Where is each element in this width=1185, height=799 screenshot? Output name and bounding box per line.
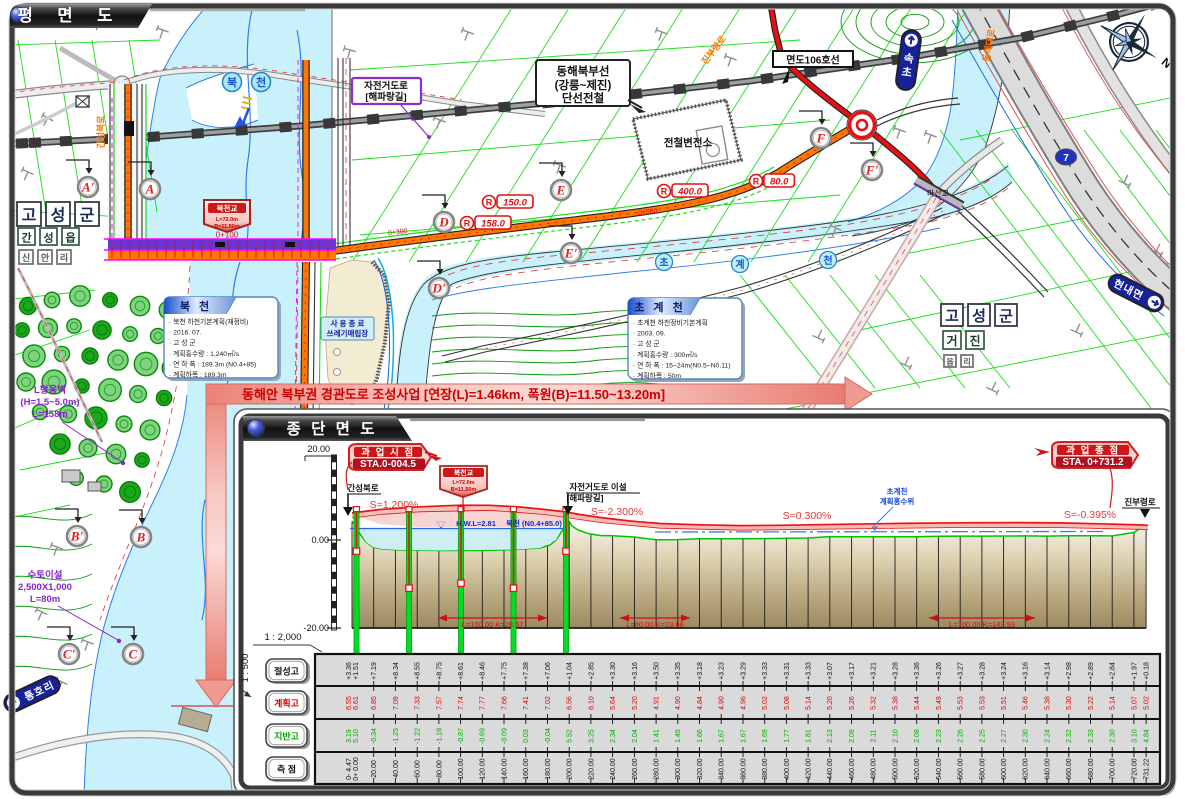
svg-text:+3.31: +3.31 <box>784 662 791 680</box>
svg-text:260.00: 260.00 <box>632 758 639 780</box>
svg-text:600.00: 600.00 <box>1001 758 1008 780</box>
svg-text:60.00: 60.00 <box>415 760 422 778</box>
svg-text:+3.16: +3.16 <box>632 662 639 680</box>
svg-text:· 연 하 폭 : 15~24m(N0.5~N0.11): · 연 하 폭 : 15~24m(N0.5~N0.11) <box>633 360 731 369</box>
svg-text:-20.00: -20.00 <box>303 623 329 633</box>
svg-text:L=158m: L=158m <box>32 409 68 420</box>
svg-text:+8.46: +8.46 <box>480 662 487 680</box>
svg-text:2.33: 2.33 <box>1088 729 1095 743</box>
svg-text:240.00: 240.00 <box>610 758 617 780</box>
svg-text:초: 초 <box>901 65 913 79</box>
svg-text:L=72.0m: L=72.0m <box>216 217 238 223</box>
svg-text:북천교: 북천교 <box>454 468 474 477</box>
svg-text:초계천: 초계천 <box>887 486 908 496</box>
svg-text:6.56: 6.56 <box>567 696 574 710</box>
svg-text:L=60.00 K=23.08: L=60.00 K=23.08 <box>626 620 684 629</box>
svg-text:STA. 0+731.2: STA. 0+731.2 <box>1062 457 1124 468</box>
svg-text:+3.30: +3.30 <box>610 662 617 680</box>
svg-text:C': C' <box>63 647 76 662</box>
svg-text:160.00: 160.00 <box>523 758 530 780</box>
svg-text:+1.04: +1.04 <box>567 662 574 680</box>
svg-text:5.44: 5.44 <box>914 696 921 710</box>
svg-text:· 계획하폭 : 50m: · 계획하폭 : 50m <box>633 371 681 380</box>
svg-text:7.02: 7.02 <box>545 696 552 710</box>
svg-text:S=-0.395%: S=-0.395% <box>1064 509 1116 521</box>
svg-text:-1.18: -1.18 <box>436 728 443 744</box>
svg-text:2.10: 2.10 <box>892 729 899 743</box>
svg-text:5.64: 5.64 <box>610 696 617 710</box>
svg-text:+3.36: +3.36 <box>346 662 353 680</box>
svg-text:+3.07: +3.07 <box>827 662 834 680</box>
svg-text:F: F <box>816 131 826 146</box>
svg-text:2,500X1,000: 2,500X1,000 <box>18 582 72 593</box>
svg-text:S=1.200%: S=1.200% <box>370 499 419 511</box>
svg-text:· 계획홍수량 : 1,240㎥/s: · 계획홍수량 : 1,240㎥/s <box>169 349 240 358</box>
svg-text:· 2003. 09.: · 2003. 09. <box>633 331 666 338</box>
svg-text:4.84: 4.84 <box>1144 729 1151 743</box>
svg-text:-0.09: -0.09 <box>501 728 508 744</box>
svg-text:5.08: 5.08 <box>784 696 791 710</box>
svg-text:7.57: 7.57 <box>436 696 443 710</box>
svg-text:3.19: 3.19 <box>346 729 353 743</box>
svg-text:6.10: 6.10 <box>588 696 595 710</box>
svg-text:380.00: 380.00 <box>762 758 769 780</box>
svg-text:1.81: 1.81 <box>806 729 813 743</box>
svg-text:7.41: 7.41 <box>523 696 530 710</box>
svg-text:1.77: 1.77 <box>784 729 791 743</box>
svg-text:5.26: 5.26 <box>849 696 856 710</box>
svg-text:-0.69: -0.69 <box>480 728 487 744</box>
svg-text:고: 고 <box>22 208 37 225</box>
svg-text:+3.33: +3.33 <box>762 662 769 680</box>
svg-text:과 업 시 점: 과 업 시 점 <box>361 446 414 458</box>
svg-text:4.91: 4.91 <box>654 696 661 710</box>
svg-text:초: 초 <box>659 256 668 269</box>
svg-text:5.02: 5.02 <box>1144 696 1151 710</box>
svg-text:7: 7 <box>1063 153 1069 164</box>
svg-text:5.22: 5.22 <box>1088 696 1095 710</box>
svg-text:계획홍수위: 계획홍수위 <box>880 496 915 506</box>
svg-text:마산교: 마산교 <box>927 188 949 198</box>
svg-text:540.00: 540.00 <box>936 758 943 780</box>
svg-text:150.0: 150.0 <box>503 198 527 209</box>
svg-text:5.38: 5.38 <box>1044 696 1051 710</box>
svg-text:+7.19: +7.19 <box>371 662 378 680</box>
svg-text:2.27: 2.27 <box>1001 729 1008 743</box>
svg-text:+2.89: +2.89 <box>1088 662 1095 680</box>
svg-text:절성고: 절성고 <box>274 666 299 677</box>
svg-text:140.00: 140.00 <box>501 758 508 780</box>
svg-text:5.53: 5.53 <box>979 696 986 710</box>
svg-text:+3.21: +3.21 <box>871 662 878 680</box>
svg-text:2.25: 2.25 <box>979 729 986 743</box>
svg-text:+3.36: +3.36 <box>914 662 921 680</box>
svg-text:읍: 읍 <box>946 356 954 366</box>
svg-text:40.00: 40.00 <box>393 760 400 778</box>
svg-text:종 단 면 도: 종 단 면 도 <box>287 420 378 438</box>
svg-text:R: R <box>661 187 668 197</box>
svg-text:· 고 성 군: · 고 성 군 <box>633 339 660 348</box>
svg-text:거: 거 <box>946 333 957 348</box>
svg-text:+3.18: +3.18 <box>697 662 704 680</box>
svg-text:+3.50: +3.50 <box>654 662 661 680</box>
svg-text:700.00: 700.00 <box>1110 758 1117 780</box>
svg-text:1 : 2,000: 1 : 2,000 <box>265 632 302 643</box>
svg-text:2.32: 2.32 <box>1066 729 1073 743</box>
svg-text:5.46: 5.46 <box>1023 696 1030 710</box>
svg-text:2.09: 2.09 <box>849 729 856 743</box>
svg-text:계획고: 계획고 <box>274 698 299 709</box>
svg-text:STA.0-004.5: STA.0-004.5 <box>360 459 416 470</box>
svg-text:R: R <box>486 198 493 208</box>
svg-text:D: D <box>438 215 449 230</box>
svg-text:· 고 성 군: · 고 성 군 <box>169 338 196 347</box>
svg-text:440.00: 440.00 <box>827 758 834 780</box>
svg-text:5.32: 5.32 <box>871 696 878 710</box>
svg-text:+7.75: +7.75 <box>501 662 508 680</box>
svg-text:3.10: 3.10 <box>1131 729 1138 743</box>
svg-text:580.00: 580.00 <box>979 758 986 780</box>
svg-text:+2.85: +2.85 <box>588 662 595 680</box>
svg-text:천: 천 <box>256 75 266 89</box>
svg-text:340.00: 340.00 <box>719 758 726 780</box>
svg-text:A': A' <box>81 180 95 195</box>
svg-text:평 면 도: 평 면 도 <box>18 6 123 25</box>
svg-text:4.96: 4.96 <box>740 696 747 710</box>
svg-text:6.85: 6.85 <box>371 696 378 710</box>
svg-text:1.41: 1.41 <box>654 729 661 743</box>
svg-text:· 2016. 07.: · 2016. 07. <box>169 330 202 337</box>
svg-text:5.07: 5.07 <box>1131 696 1138 710</box>
svg-text:5.14: 5.14 <box>806 696 813 710</box>
svg-text:5.52: 5.52 <box>567 729 574 743</box>
svg-text:· 계획홍수량 : 300㎥/s: · 계획홍수량 : 300㎥/s <box>633 350 698 359</box>
svg-text:0+ 0.00: 0+ 0.00 <box>353 757 360 781</box>
svg-text:안: 안 <box>41 253 50 263</box>
svg-text:2.23: 2.23 <box>936 729 943 743</box>
svg-text:+3.35: +3.35 <box>675 662 682 680</box>
svg-text:0.03: 0.03 <box>523 729 530 743</box>
svg-text:180.00: 180.00 <box>545 758 552 780</box>
svg-text:0- 4.47: 0- 4.47 <box>346 758 353 780</box>
svg-text:자전거도로: 자전거도로 <box>364 80 408 92</box>
svg-text:7.66: 7.66 <box>501 696 508 710</box>
svg-text:300.00: 300.00 <box>675 758 682 780</box>
svg-text:5.30: 5.30 <box>1066 696 1073 710</box>
svg-text:· 초계천 하천정비기본계획: · 초계천 하천정비기본계획 <box>633 318 708 327</box>
svg-text:읍: 읍 <box>65 231 75 244</box>
svg-text:북천교: 북천교 <box>217 203 238 213</box>
svg-text:620.00: 620.00 <box>1023 758 1030 780</box>
svg-text:2.26: 2.26 <box>958 729 965 743</box>
svg-text:간: 간 <box>21 230 31 244</box>
svg-text:B=11.50m: B=11.50m <box>214 224 240 230</box>
svg-text:5.02: 5.02 <box>762 696 769 710</box>
svg-text:리: 리 <box>60 252 68 263</box>
svg-text:400.0: 400.0 <box>677 187 702 198</box>
svg-text:L=100.00 K=143.93: L=100.00 K=143.93 <box>949 620 1015 629</box>
svg-text:-0.04: -0.04 <box>545 728 552 744</box>
svg-text:L=72.0m: L=72.0m <box>452 480 474 486</box>
svg-text:L=100.00 K=28.57: L=100.00 K=28.57 <box>462 620 524 629</box>
svg-text:5.20: 5.20 <box>632 696 639 710</box>
svg-text:+3.23: +3.23 <box>719 662 726 680</box>
svg-text:2.04: 2.04 <box>632 729 639 743</box>
svg-text:+3.17: +3.17 <box>849 662 856 680</box>
svg-text:+2.98: +2.98 <box>1066 662 1073 680</box>
svg-text:진부령로: 진부령로 <box>1124 497 1155 507</box>
svg-text:+3.14: +3.14 <box>1044 662 1051 680</box>
svg-text:4.90: 4.90 <box>719 696 726 710</box>
svg-text:B: B <box>136 530 146 545</box>
svg-text:+7.06: +7.06 <box>545 662 552 680</box>
svg-text:-0.87: -0.87 <box>458 728 465 744</box>
svg-text:360.00: 360.00 <box>740 758 747 780</box>
svg-text:성: 성 <box>972 307 986 325</box>
svg-text:· 연 하 폭 : 189.3m (N0.4+85): · 연 하 폭 : 189.3m (N0.4+85) <box>169 359 256 368</box>
svg-text:C: C <box>129 647 138 662</box>
svg-text:성: 성 <box>51 207 66 225</box>
svg-text:리: 리 <box>963 356 970 366</box>
svg-text:5.53: 5.53 <box>958 696 965 710</box>
svg-text:-1.25: -1.25 <box>393 728 400 744</box>
svg-text:지반고: 지반고 <box>274 731 299 742</box>
svg-text:+3.24: +3.24 <box>1001 662 1008 680</box>
svg-text:+3.27: +3.27 <box>958 662 965 680</box>
svg-text:군: 군 <box>999 308 1013 325</box>
svg-text:A: A <box>145 182 155 197</box>
svg-text:간성북로: 간성북로 <box>347 483 378 493</box>
svg-text:+3.26: +3.26 <box>936 662 943 680</box>
svg-text:5.38: 5.38 <box>892 696 899 710</box>
svg-text:+8.55: +8.55 <box>415 662 422 680</box>
svg-text:2.30: 2.30 <box>1023 729 1030 743</box>
svg-text:R: R <box>464 219 471 229</box>
svg-text:640.00: 640.00 <box>1044 758 1051 780</box>
svg-text:· 북천 하천기본계획(재정비): · 북천 하천기본계획(재정비) <box>169 317 248 326</box>
svg-text:진: 진 <box>969 333 980 348</box>
svg-text:H.W.L=2.81: H.W.L=2.81 <box>456 519 496 528</box>
svg-text:1 : 500: 1 : 500 <box>240 653 251 682</box>
svg-text:(H=1.5~5.0m): (H=1.5~5.0m) <box>20 397 79 408</box>
svg-text:1.67: 1.67 <box>740 729 747 743</box>
svg-text:자전거도로 이설: 자전거도로 이설 <box>569 482 626 492</box>
svg-text:간성북로: 간성북로 <box>95 115 106 149</box>
svg-text:+3.29: +3.29 <box>740 662 747 680</box>
svg-text:+3.28: +3.28 <box>892 662 899 680</box>
svg-text:+1.51: +1.51 <box>353 662 360 680</box>
svg-text:520.00: 520.00 <box>914 758 921 780</box>
svg-text:(강릉~제진): (강릉~제진) <box>555 78 612 92</box>
svg-text:2.13: 2.13 <box>827 729 834 743</box>
svg-text:E: E <box>556 183 566 198</box>
svg-text:천: 천 <box>823 254 832 267</box>
svg-text:S=0.300%: S=0.300% <box>783 510 832 522</box>
svg-text:사 용 종 료: 사 용 종 료 <box>331 318 365 328</box>
svg-text:면도106호선: 면도106호선 <box>786 54 840 67</box>
svg-text:B': B' <box>70 529 84 544</box>
svg-text:L형옹벽: L형옹벽 <box>34 384 66 396</box>
svg-text:신: 신 <box>22 252 30 263</box>
svg-text:[해파랑길]: [해파랑길] <box>567 493 604 503</box>
svg-text:· 계획하폭 : 189.3m: · 계획하폭 : 189.3m <box>169 370 227 379</box>
svg-text:2.11: 2.11 <box>871 729 878 742</box>
svg-text:S=-2.300%: S=-2.300% <box>591 506 643 518</box>
svg-text:북천 (N0.4+85.0): 북천 (N0.4+85.0) <box>506 518 562 528</box>
svg-text:7.74: 7.74 <box>458 696 465 710</box>
svg-text:+8.75: +8.75 <box>436 662 443 680</box>
svg-text:731.22: 731.22 <box>1144 758 1151 780</box>
svg-text:5.10: 5.10 <box>353 729 360 743</box>
svg-text:북 천: 북 천 <box>180 299 212 313</box>
svg-text:과 업 종 점: 과 업 종 점 <box>1066 444 1119 456</box>
svg-text:5.51: 5.51 <box>1001 696 1008 710</box>
svg-text:6.61: 6.61 <box>353 696 360 710</box>
svg-text:5.14: 5.14 <box>1110 696 1117 710</box>
svg-text:1.45: 1.45 <box>675 729 682 743</box>
svg-text:F': F' <box>865 163 879 178</box>
svg-text:고: 고 <box>945 308 959 325</box>
svg-text:20.00: 20.00 <box>307 444 330 454</box>
svg-text:+3.16: +3.16 <box>1023 662 1030 680</box>
svg-text:4.84: 4.84 <box>697 696 704 710</box>
svg-text:220.00: 220.00 <box>588 758 595 780</box>
svg-text:성: 성 <box>43 230 53 244</box>
svg-text:군: 군 <box>80 207 95 225</box>
svg-text:D': D' <box>432 281 446 296</box>
svg-text:속: 속 <box>903 51 915 65</box>
svg-text:-1.22: -1.22 <box>415 728 422 744</box>
svg-text:+2.84: +2.84 <box>1110 662 1117 680</box>
svg-text:720.00: 720.00 <box>1131 758 1138 780</box>
svg-text:5.20: 5.20 <box>827 696 834 710</box>
svg-text:320.00: 320.00 <box>697 758 704 780</box>
svg-text:158.0: 158.0 <box>481 219 505 230</box>
svg-text:2.34: 2.34 <box>610 729 617 743</box>
svg-text:1.67: 1.67 <box>719 729 726 743</box>
svg-text:100.00: 100.00 <box>458 758 465 780</box>
svg-text:7.77: 7.77 <box>480 696 487 710</box>
svg-text:2.08: 2.08 <box>914 729 921 743</box>
svg-text:+3.28: +3.28 <box>979 662 986 680</box>
svg-text:수토이설: 수토이설 <box>28 569 63 581</box>
svg-text:500.00: 500.00 <box>892 758 899 780</box>
svg-text:단선전철: 단선전철 <box>562 91 604 105</box>
svg-text:560.00: 560.00 <box>958 758 965 780</box>
svg-text:460.00: 460.00 <box>849 758 856 780</box>
svg-text:2.24: 2.24 <box>1044 729 1051 743</box>
svg-text:+7.38: +7.38 <box>523 662 530 680</box>
svg-text:5.49: 5.49 <box>936 696 943 710</box>
svg-text:R: R <box>753 177 760 187</box>
svg-text:2.30: 2.30 <box>1110 729 1117 743</box>
svg-text:400.00: 400.00 <box>784 758 791 780</box>
svg-text:1.69: 1.69 <box>762 729 769 743</box>
svg-text:680.00: 680.00 <box>1088 758 1095 780</box>
svg-text:+0.18: +0.18 <box>1144 662 1151 680</box>
svg-text:1.66: 1.66 <box>697 729 704 743</box>
svg-text:+8.61: +8.61 <box>458 662 465 680</box>
svg-text:660.00: 660.00 <box>1066 758 1073 780</box>
svg-text:3.25: 3.25 <box>588 729 595 743</box>
svg-text:초 계 천: 초 계 천 <box>634 300 685 314</box>
svg-text:동해안 북부권 경관도로 조성사업 [연장(L)=1.46k: 동해안 북부권 경관도로 조성사업 [연장(L)=1.46km, 폭원(B)=1… <box>242 387 665 402</box>
svg-text:420.00: 420.00 <box>806 758 813 780</box>
svg-text:80.0: 80.0 <box>770 177 789 188</box>
svg-text:20.00: 20.00 <box>371 760 378 778</box>
svg-text:-0.34: -0.34 <box>371 728 378 744</box>
svg-text:북: 북 <box>227 75 237 89</box>
svg-text:120.00: 120.00 <box>480 758 487 780</box>
svg-text:[해파랑길]: [해파랑길] <box>365 91 406 103</box>
svg-text:4.90: 4.90 <box>675 696 682 710</box>
svg-text:480.00: 480.00 <box>871 758 878 780</box>
svg-text:+8.34: +8.34 <box>393 662 400 680</box>
svg-text:L=80m: L=80m <box>30 594 60 605</box>
svg-text:7.33: 7.33 <box>415 696 422 710</box>
svg-text:계: 계 <box>735 258 744 271</box>
svg-text:280.00: 280.00 <box>654 758 661 780</box>
svg-text:B=11.50m: B=11.50m <box>451 487 477 493</box>
svg-text:200.00: 200.00 <box>567 758 574 780</box>
svg-text:+1.97: +1.97 <box>1131 662 1138 680</box>
svg-text:측 점: 측 점 <box>277 764 296 775</box>
svg-text:6.55: 6.55 <box>346 696 353 710</box>
svg-text:전철변전소: 전철변전소 <box>664 136 713 149</box>
svg-text:0.00: 0.00 <box>311 535 329 545</box>
svg-text:쓰레기매립장: 쓰레기매립장 <box>327 328 368 338</box>
svg-text:7.09: 7.09 <box>393 696 400 710</box>
svg-text:E': E' <box>564 246 578 261</box>
svg-text:동해북부선: 동해북부선 <box>557 64 610 78</box>
svg-text:+3.33: +3.33 <box>806 662 813 680</box>
svg-text:80.00: 80.00 <box>436 760 443 778</box>
